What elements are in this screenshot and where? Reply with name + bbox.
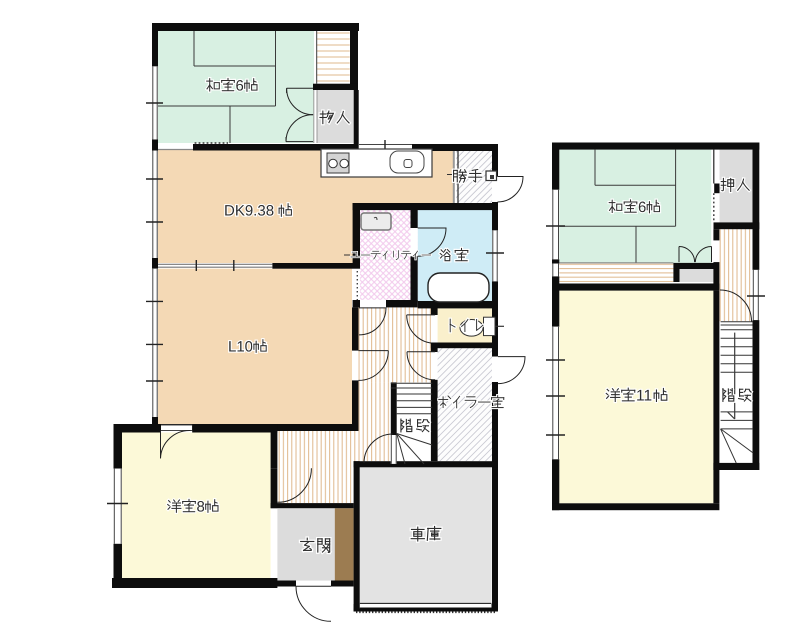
svg-text:6: 6 — [236, 77, 244, 94]
svg-text:L10: L10 — [228, 338, 253, 355]
svg-text:DK9.38: DK9.38 — [224, 202, 274, 219]
svg-text:11: 11 — [636, 388, 652, 405]
svg-text:6: 6 — [638, 199, 646, 216]
svg-text:8: 8 — [197, 498, 205, 515]
